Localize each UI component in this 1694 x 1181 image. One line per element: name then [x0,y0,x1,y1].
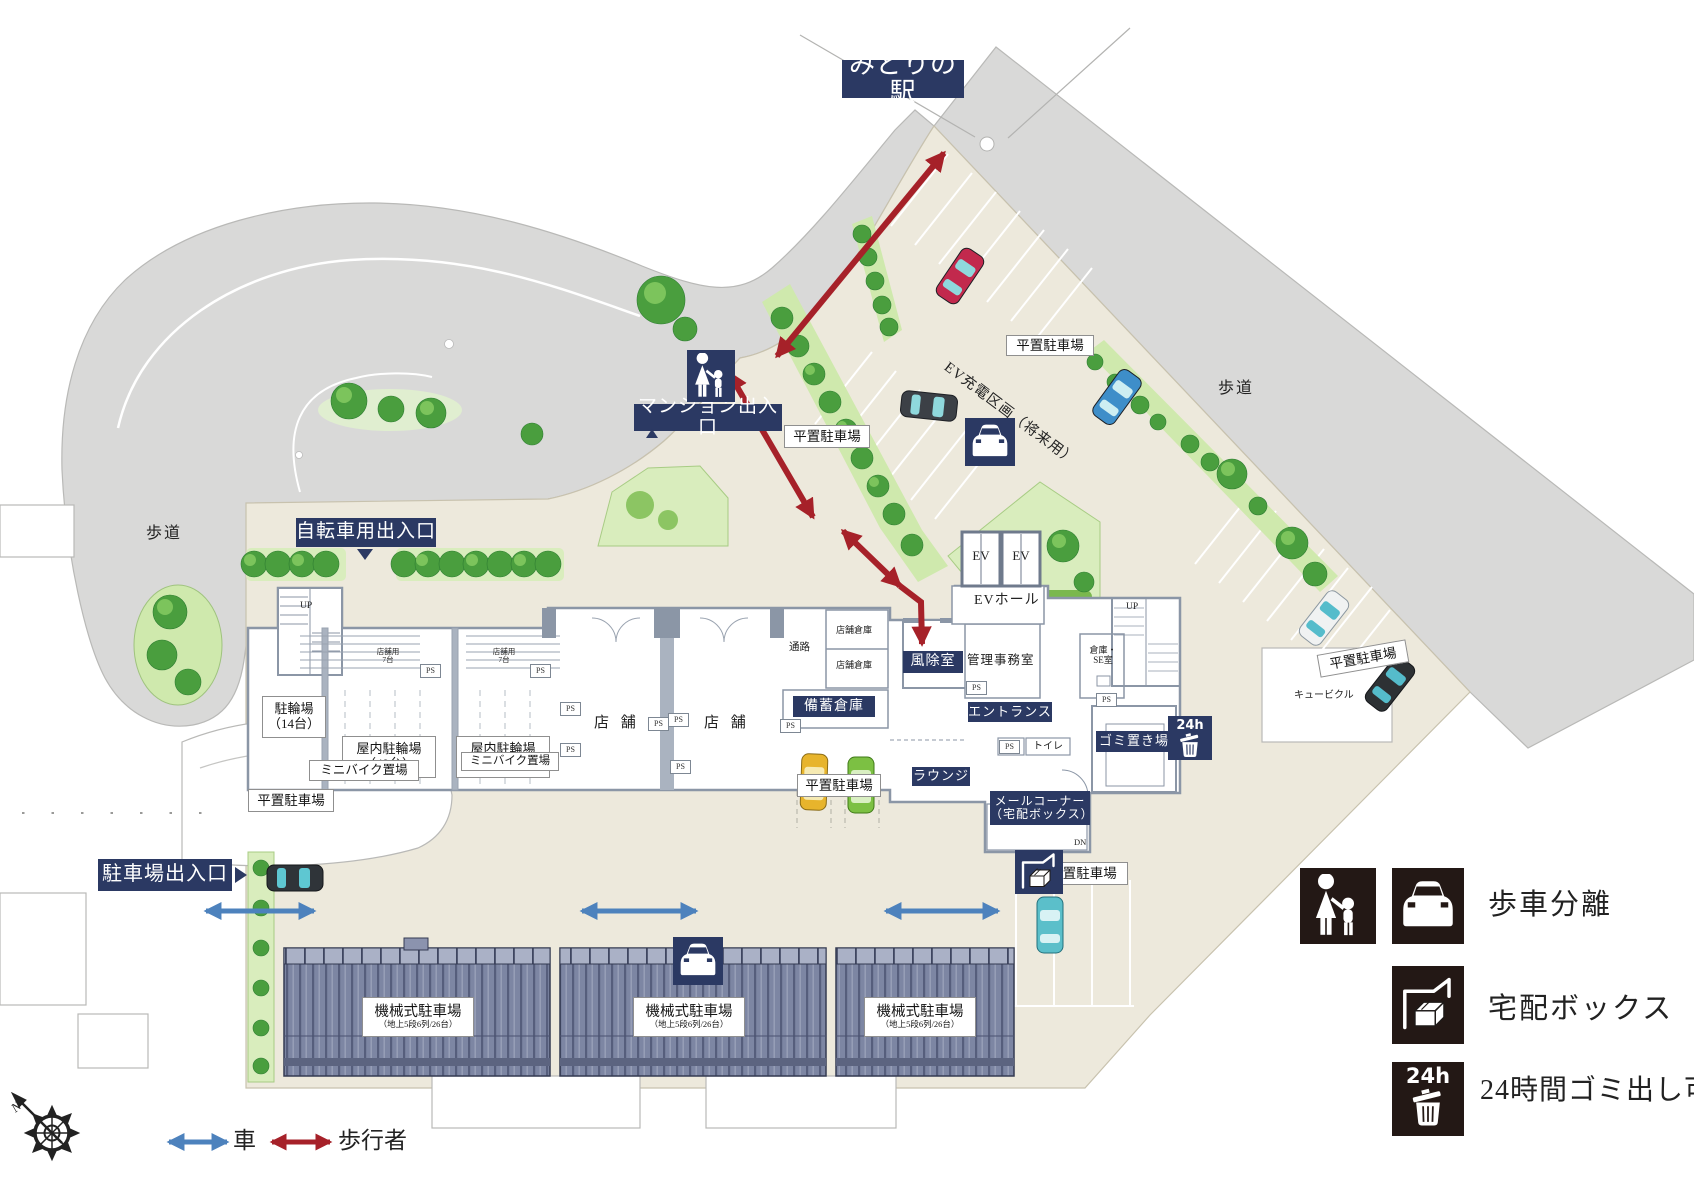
up-triangle-icon [646,429,658,438]
car-icon-mech-parking [673,937,723,985]
car-icon-ev-parking [965,418,1015,466]
mech-parking-label-2: 機械式駐車場 （地上5段6列/26台） [633,997,745,1037]
ps-label: PS [560,743,581,757]
legend-car-label: 車 [233,1128,256,1153]
delivery-box-icon-map [1015,850,1063,894]
legend-separation-label: 歩車分離 [1488,890,1612,922]
site-plan: みどりの駅 マンション出入口 自転車用出入口 駐車場出入口 風除室 備蓄倉庫 エ… [0,0,1694,1181]
24h-text: 24h [1406,1066,1450,1087]
elevator-label-2: EV [1002,549,1040,563]
trash-glyph [1405,1087,1451,1127]
store-label-1: 店 舗 [594,715,640,732]
sidewalk-label-left: 歩道 [146,525,182,543]
legend-delivery-box-icon [1392,966,1464,1044]
minibike-label-2: ミニバイク置場 [461,752,559,771]
ps-label: PS [560,702,581,716]
windbreak-room-label: 風除室 [903,651,963,673]
car-teal [1037,897,1063,953]
store-warehouse-label-1: 店舗倉庫 [836,626,872,636]
store-use-label-2: 店舗用 7台 [488,648,520,665]
store-use-label-1: 店舗用 7台 [372,648,404,665]
delivery-box-glyph [1018,852,1060,892]
dn-label: DN [1074,838,1086,847]
mail-corner-line2: （宅配ボックス） [990,808,1090,821]
pedestrian-icon [687,350,735,402]
store-warehouse-label-2: 店舗倉庫 [836,661,872,671]
legend-pedestrian-label: 歩行者 [338,1128,407,1153]
bicycle-entrance-label: 自転車用出入口 [296,518,436,547]
warehouse-se-line1: 倉庫・ [1089,645,1116,655]
car-gray [900,390,958,422]
mech-parking-2-spec: （地上5段6列/26台） [650,1020,729,1030]
lounge-label: ラウンジ [912,767,970,786]
entrance-hall-label: エントランス [968,702,1052,722]
ps-label: PS [780,719,801,733]
ev-hall-label: EVホール [974,593,1040,608]
elevator-label-1: EV [962,549,1000,563]
ps-label: PS [530,664,551,678]
station-label: みどりの駅 [842,60,964,98]
car-glyph [677,941,719,981]
legend-24h-garbage-icon: 24h [1392,1062,1464,1136]
ps-label: PS [668,713,689,727]
bicycle-parking-name: 駐輪場 [274,702,313,717]
legend-delivery-label: 宅配ボックス [1488,994,1673,1026]
garbage-area-label: ゴミ置き場 [1096,731,1172,752]
cubicle-label: キュービクル [1294,690,1354,701]
mech-parking-1-spec: （地上5段6列/26台） [379,1020,458,1030]
parking-entrance-label: 駐車場出入口 [98,859,232,891]
mech-parking-label-3: 機械式駐車場 （地上5段6列/26台） [864,997,976,1037]
store-use-1-line2: 7台 [382,655,393,664]
ps-label: PS [648,717,669,731]
ps-label: PS [670,760,691,774]
bicycle-parking-count: （14台） [268,717,320,732]
24h-garbage-icon-map: 24h [1168,716,1212,760]
mech-parking-1-title: 機械式駐車場 [375,1004,462,1021]
toilet-label: トイレ [1033,741,1063,752]
pedestrian-glyph [689,353,733,399]
elevator-block [952,532,1044,624]
warehouse-se-line2: SE室 [1093,655,1113,665]
stockpile-warehouse-label: 備蓄倉庫 [793,696,875,717]
up-label-west: UP [300,601,312,611]
minibike-label-1: ミニバイク置場 [309,760,419,781]
flat-parking-label-center: 平置駐車場 [797,774,881,797]
right-triangle-icon [235,867,247,883]
warehouse-se-label: 倉庫・ SE室 [1083,646,1123,666]
indoor-bicycle-49-name: 屋内駐輪場 [356,742,421,757]
delivery-box-glyph [1399,976,1457,1034]
legend-24h-label: 24時間ゴミ出し可 [1480,1076,1694,1107]
ps-label: PS [420,664,441,678]
legend-car-icon [1392,868,1464,944]
ps-label: PS [966,681,987,695]
ps-label: PS [1096,693,1117,707]
24h-text: 24h [1176,719,1203,732]
sidewalk-label-right: 歩道 [1218,380,1254,398]
mansion-entrance-label: マンション出入口 [634,404,782,431]
ps-label: PS [999,740,1020,754]
car-entrance [267,865,323,891]
flat-parking-label-mid: 平置駐車場 [784,425,870,448]
pedestrian-glyph [1307,874,1369,938]
mech-parking-2-title: 機械式駐車場 [646,1004,733,1021]
down-triangle-icon [357,549,373,560]
passage-label: 通路 [789,642,810,654]
store-use-2-line2: 7台 [498,655,509,664]
mail-corner-label: メールコーナー （宅配ボックス） [990,791,1090,825]
mech-parking-3-title: 機械式駐車場 [877,1004,964,1021]
up-label-east: UP [1126,602,1138,612]
store-label-2: 店 舗 [704,715,750,732]
compass-icon [12,1093,79,1160]
car-glyph [969,422,1011,462]
mech-parking-label-1: 機械式駐車場 （地上5段6列/26台） [362,997,474,1037]
flat-parking-label-left: 平置駐車場 [248,789,334,812]
trash-glyph [1175,732,1205,758]
legend-pedestrian-icon [1300,868,1376,944]
bicycle-parking-label: 駐輪場 （14台） [262,696,326,738]
car-glyph [1398,877,1458,935]
mech-parking-3-spec: （地上5段6列/26台） [881,1020,960,1030]
admin-office-label: 管理事務室 [967,654,1035,668]
flat-parking-label-topright: 平置駐車場 [1006,335,1094,356]
